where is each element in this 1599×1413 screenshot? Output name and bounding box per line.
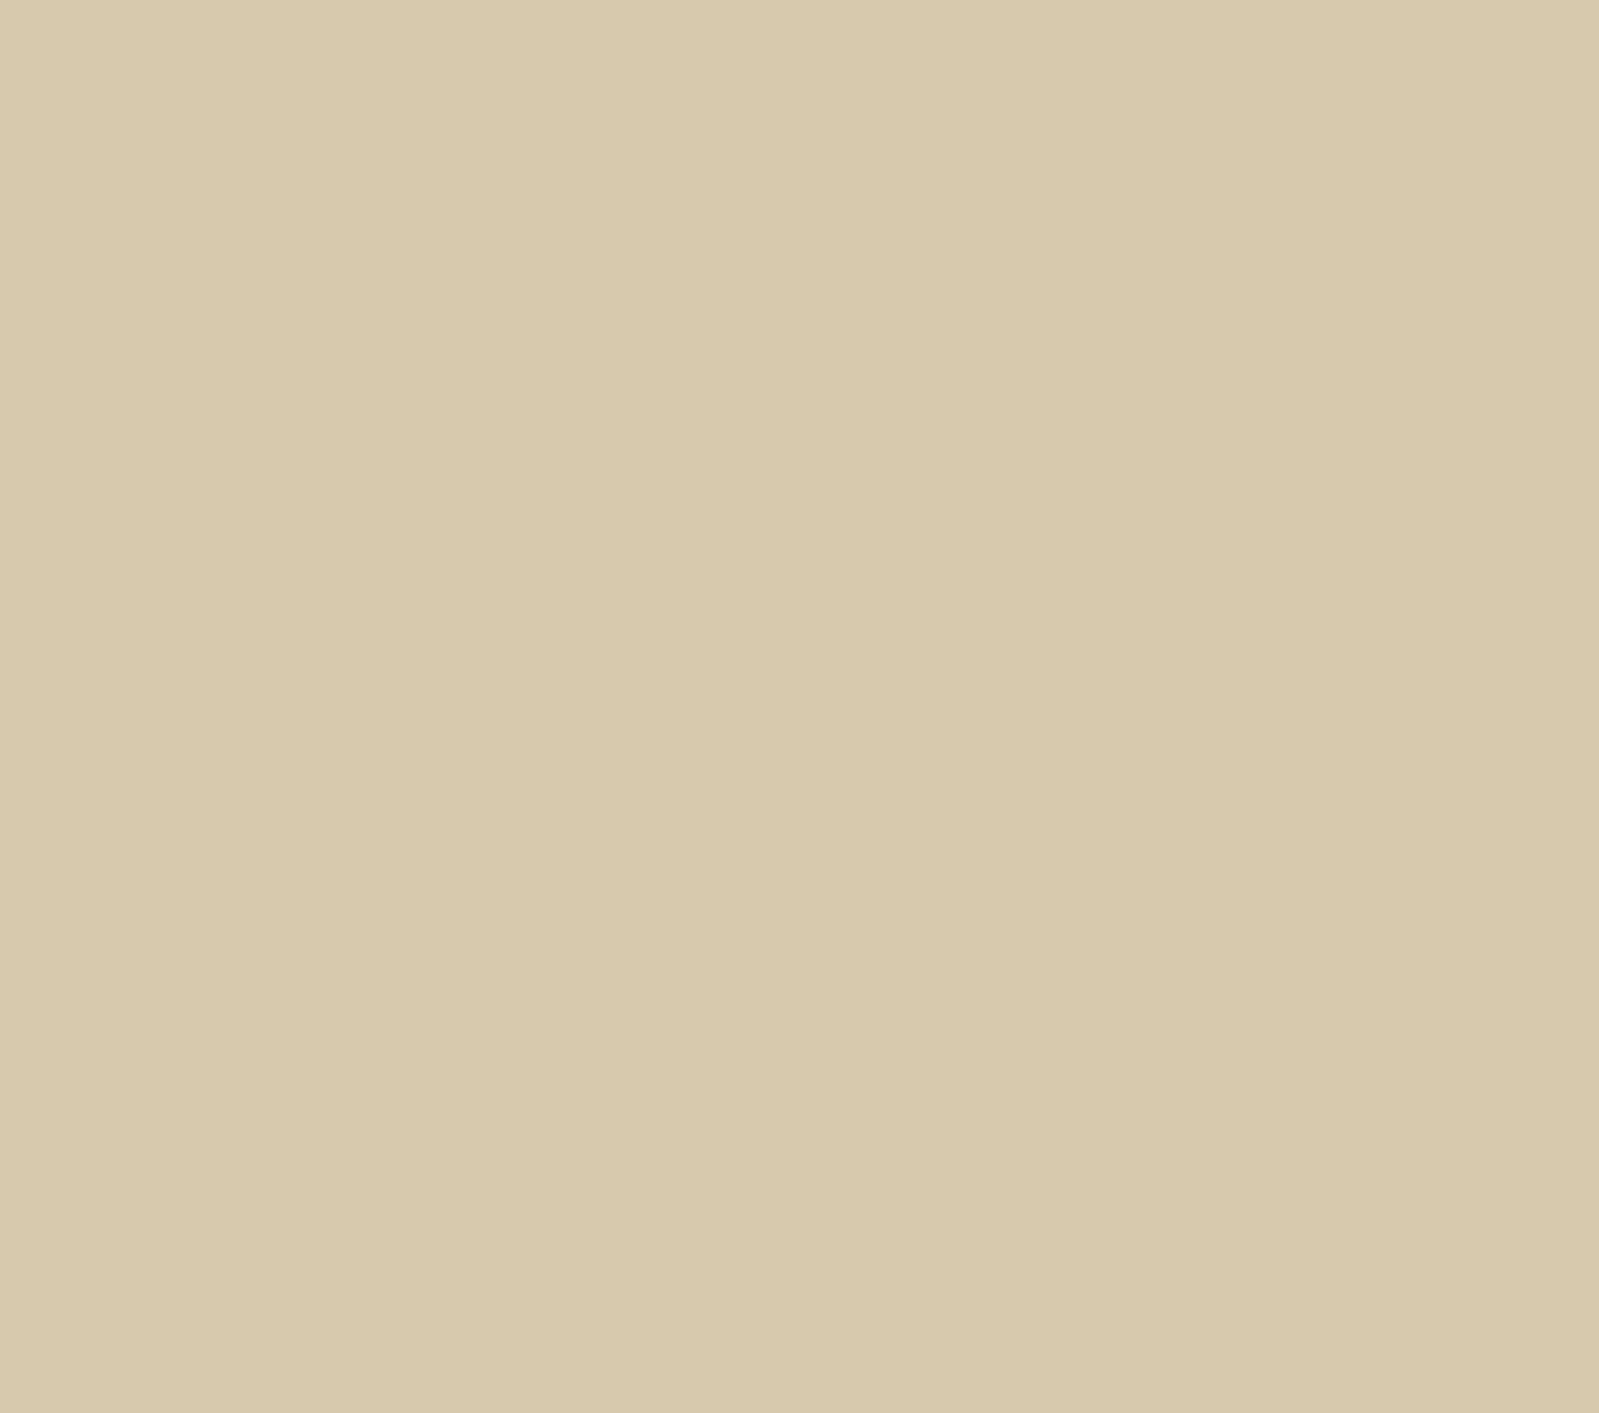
paper-background <box>0 0 1599 1413</box>
town-map-photo <box>0 0 1599 1413</box>
town-map-svg <box>0 0 1599 1413</box>
